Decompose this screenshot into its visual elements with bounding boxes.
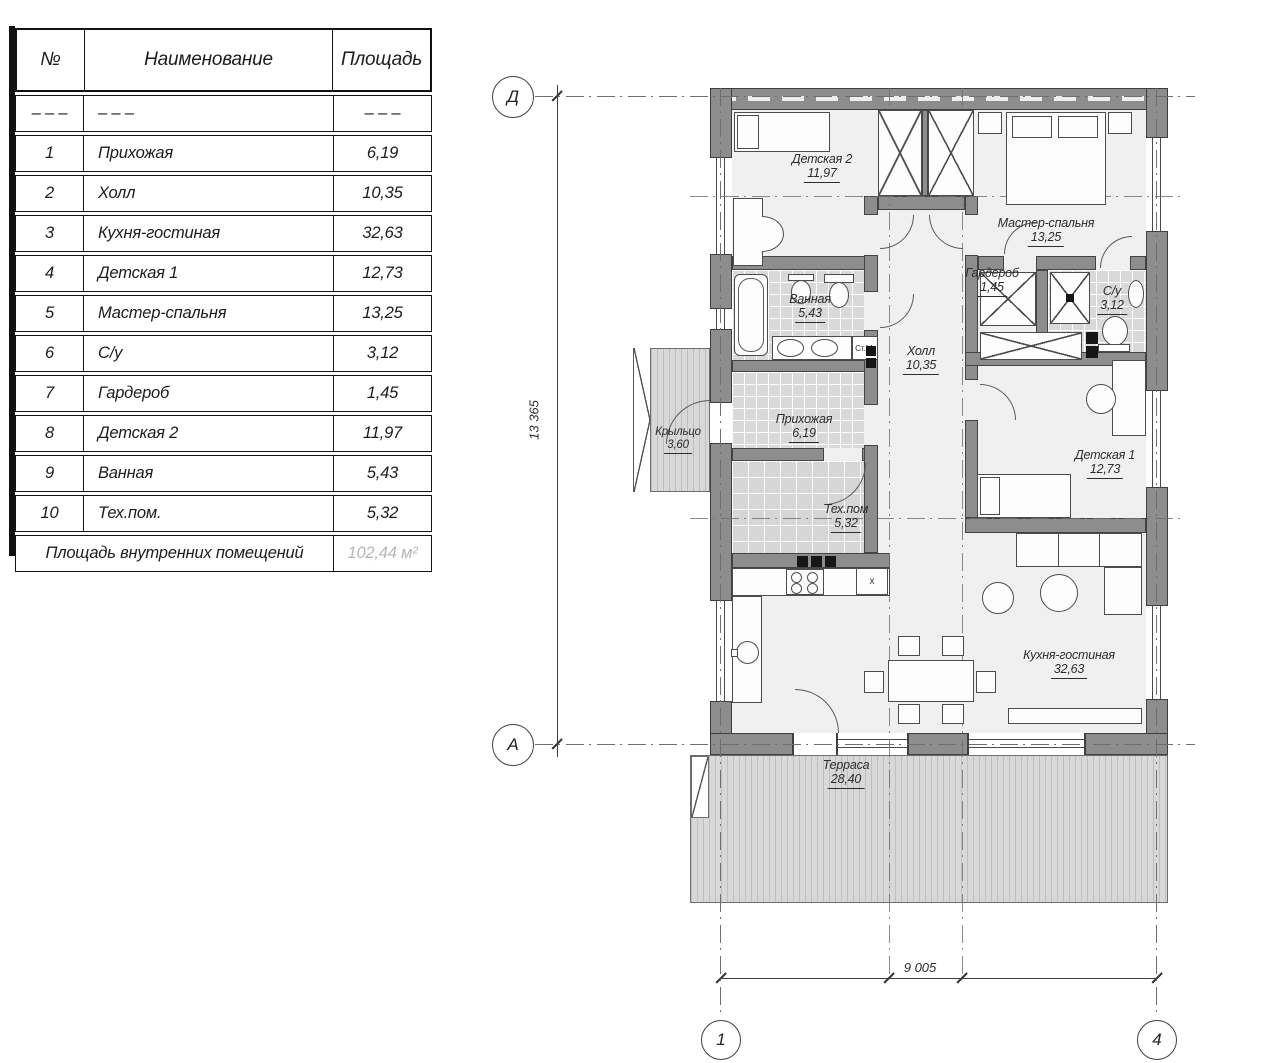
axis-marker-d: Д <box>492 76 534 118</box>
axis-label: 4 <box>1152 1030 1161 1050</box>
room-area: 10,35 <box>903 358 939 374</box>
chair <box>976 671 996 693</box>
room-area-value: 11,97 <box>804 166 839 182</box>
table-row: 10 Тех.пом. 5,32 <box>15 495 432 532</box>
table-header-row: № Наименование Площадь <box>15 28 432 92</box>
wall-interior <box>864 445 878 553</box>
round-sink <box>736 641 759 664</box>
row-area: 10,35 <box>333 176 431 211</box>
stove <box>786 569 824 595</box>
axis-marker-1: 1 <box>701 1020 741 1060</box>
row-area: 5,32 <box>333 496 431 531</box>
axis-label: 1 <box>716 1030 725 1050</box>
tv-console <box>1008 708 1142 724</box>
row-num: 7 <box>16 376 84 411</box>
row-num: 3 <box>16 216 84 251</box>
axis-marker-4: 4 <box>1137 1020 1177 1060</box>
room-label-kuhnya: Кухня-гостиная 32,63 <box>1023 648 1115 679</box>
room-area-value: 28,40 <box>828 772 864 788</box>
room-area: 6,19 <box>776 426 832 442</box>
sofa-seam <box>1058 534 1059 566</box>
pillow <box>1058 116 1098 138</box>
wall-interior <box>965 518 1146 533</box>
sofa <box>1016 533 1142 567</box>
desk <box>733 198 763 266</box>
chair <box>898 704 920 724</box>
room-label-terrasa: Терраса 28,40 <box>823 758 870 789</box>
room-label-krylco: Крыльцо 3,60 <box>655 426 701 454</box>
dimension-line-vertical <box>557 85 558 757</box>
footer-total-value: 102,44 м² <box>333 536 431 571</box>
table-row: 7 Гардероб 1,45 <box>15 375 432 412</box>
row-name: Детская 1 <box>84 256 333 291</box>
sink <box>777 339 804 357</box>
room-label-detskaya1: Детская 1 12,73 <box>1075 448 1135 479</box>
wall-interior <box>1130 256 1146 270</box>
sofa-chaise <box>1104 567 1142 615</box>
header-area: Площадь <box>332 30 430 90</box>
row-area: 5,43 <box>333 456 431 491</box>
row-num: 2 <box>16 176 84 211</box>
axis-label: Д <box>507 87 519 107</box>
footer-label: Площадь внутренних помещений <box>16 536 333 571</box>
axis-marker-a: А <box>492 724 534 766</box>
row-area: 32,63 <box>333 216 431 251</box>
room-name: С/у <box>1097 284 1127 298</box>
window <box>710 157 732 255</box>
floor-plan-sheet: № Наименование Площадь – – – – – – – – –… <box>0 0 1280 1063</box>
room-label-vannaya: Ванная 5,43 <box>789 292 830 323</box>
axis-line-a <box>535 744 1195 745</box>
wardrobe <box>878 110 922 196</box>
room-area-value: 13,25 <box>1028 230 1064 246</box>
row-num: – – – <box>16 96 84 131</box>
table-row: 6 С/у 3,12 <box>15 335 432 372</box>
nightstand <box>978 112 1002 134</box>
room-name: Детская 2 <box>792 152 852 166</box>
boiler-icon <box>825 556 836 567</box>
room-area-value: 3,60 <box>664 439 692 454</box>
row-num: 8 <box>16 416 84 451</box>
row-name: Тех.пом. <box>84 496 333 531</box>
toilet <box>1102 316 1128 346</box>
table-row: 2 Холл 10,35 <box>15 175 432 212</box>
row-area: – – – <box>333 96 431 131</box>
pillow <box>980 477 1000 515</box>
dimension-value-horizontal: 9 005 <box>904 960 937 975</box>
room-name: Терраса <box>823 758 870 772</box>
wall-interior <box>965 196 978 215</box>
row-num: 4 <box>16 256 84 291</box>
sink-marker: x <box>870 576 875 587</box>
room-name: Крыльцо <box>655 426 701 439</box>
boiler-icon <box>797 556 808 567</box>
sink <box>811 339 838 357</box>
boiler-icon <box>811 556 822 567</box>
kitchen-sink-box: x <box>856 568 888 595</box>
axis-line-4 <box>1156 88 1157 1016</box>
wardrobe <box>980 332 1082 360</box>
room-label-prihozhaya: Прихожая 6,19 <box>776 412 832 443</box>
axis-label: А <box>507 735 518 755</box>
room-area-value: 5,32 <box>831 516 861 532</box>
row-area: 3,12 <box>333 336 431 371</box>
table-left-bar <box>9 26 15 556</box>
wardrobe <box>928 110 974 196</box>
room-name: Мастер-спальня <box>998 216 1095 230</box>
wall-interior <box>878 196 965 210</box>
sink <box>1128 280 1144 308</box>
table-footer-row: Площадь внутренних помещений 102,44 м² <box>15 535 432 572</box>
room-label-tehpom: Тех.пом 5,32 <box>824 502 868 533</box>
row-name: Прихожая <box>84 136 333 171</box>
row-name: Холл <box>84 176 333 211</box>
tap-icon <box>731 649 738 657</box>
wall-interior <box>732 448 824 461</box>
burner-icon <box>807 583 818 594</box>
room-area-value: 6,19 <box>789 426 819 442</box>
row-num: 1 <box>16 136 84 171</box>
window <box>1146 137 1168 232</box>
room-name: Кухня-гостиная <box>1023 648 1115 662</box>
room-area: 11,97 <box>792 166 852 182</box>
table-row: 8 Детская 2 11,97 <box>15 415 432 452</box>
chair <box>864 671 884 693</box>
axis-line-d <box>535 96 1195 97</box>
shower-drain-icon <box>1066 294 1074 302</box>
header-num: № <box>17 30 85 90</box>
row-name: – – – <box>84 96 333 131</box>
burner-icon <box>791 583 802 594</box>
row-area: 12,73 <box>333 256 431 291</box>
room-area: 1,45 <box>965 280 1018 296</box>
row-name: Ванная <box>84 456 333 491</box>
row-num: 10 <box>16 496 84 531</box>
row-area: 6,19 <box>333 136 431 171</box>
room-name: Ванная <box>789 292 830 306</box>
row-name: С/у <box>84 336 333 371</box>
riser-icon <box>1086 346 1098 358</box>
window <box>1146 390 1168 488</box>
dimension-line-horizontal <box>721 978 1157 979</box>
room-label-holl: Холл 10,35 <box>903 344 939 375</box>
porch-steps-icon <box>633 348 650 420</box>
terrace-area <box>690 755 1168 903</box>
room-area-value: 10,35 <box>903 358 939 374</box>
row-num: 5 <box>16 296 84 331</box>
header-name: Наименование <box>85 30 332 90</box>
room-area-value: 1,45 <box>977 280 1007 296</box>
room-name: Тех.пом <box>824 502 868 516</box>
dining-table <box>888 660 974 702</box>
burner-icon <box>807 572 818 583</box>
row-area: 11,97 <box>333 416 431 451</box>
room-label-garderob: Гардероб 1,45 <box>965 266 1018 297</box>
nightstand <box>1108 112 1132 134</box>
riser-icon <box>1086 332 1098 344</box>
room-area: 13,25 <box>998 230 1095 246</box>
burner-icon <box>791 572 802 583</box>
room-area: 5,32 <box>824 516 868 532</box>
chair <box>942 704 964 724</box>
chair <box>1086 384 1116 414</box>
axis-line <box>690 518 1180 519</box>
room-area: 28,40 <box>823 772 870 788</box>
room-area: 3,60 <box>655 439 701 454</box>
riser-icon <box>866 346 876 356</box>
porch-steps-icon <box>633 420 650 492</box>
room-area-value: 32,63 <box>1051 662 1087 678</box>
room-label-su: С/у 3,12 <box>1097 284 1127 315</box>
dimension-value-vertical: 13 365 <box>527 400 542 440</box>
wall-interior <box>864 255 878 292</box>
chair <box>942 636 964 656</box>
pouf <box>982 582 1014 614</box>
room-area: 3,12 <box>1097 298 1127 314</box>
terrace-steps-icon <box>691 756 709 818</box>
room-name: Холл <box>903 344 939 358</box>
row-area: 1,45 <box>333 376 431 411</box>
room-name: Прихожая <box>776 412 832 426</box>
room-name: Детская 1 <box>1075 448 1135 462</box>
room-name: Гардероб <box>965 266 1018 280</box>
room-area-value: 5,43 <box>795 306 825 322</box>
table-row: 3 Кухня-гостиная 32,63 <box>15 215 432 252</box>
wall-interior <box>732 360 878 372</box>
row-area: 13,25 <box>333 296 431 331</box>
axis-line <box>690 196 1180 197</box>
chair <box>898 636 920 656</box>
table-row: 1 Прихожая 6,19 <box>15 135 432 172</box>
desk <box>1112 360 1146 436</box>
row-num: 9 <box>16 456 84 491</box>
room-area: 32,63 <box>1023 662 1115 678</box>
toilet <box>829 282 849 308</box>
armchair <box>1040 574 1078 612</box>
room-area-value: 3,12 <box>1097 298 1127 314</box>
room-label-master: Мастер-спальня 13,25 <box>998 216 1095 247</box>
table-row: – – – – – – – – – <box>15 95 432 132</box>
wall-interior <box>864 196 878 215</box>
axis-line-1 <box>720 88 721 1016</box>
room-area-value: 12,73 <box>1087 462 1123 478</box>
row-num: 6 <box>16 336 84 371</box>
room-table: № Наименование Площадь – – – – – – – – –… <box>15 28 432 572</box>
wall-interior <box>1036 256 1096 270</box>
table-row: 9 Ванная 5,43 <box>15 455 432 492</box>
table-row: 4 Детская 1 12,73 <box>15 255 432 292</box>
pillow <box>1012 116 1052 138</box>
riser-icon <box>866 358 876 368</box>
entrance-door-opening <box>710 402 732 444</box>
room-area: 12,73 <box>1075 462 1135 478</box>
row-name: Мастер-спальня <box>84 296 333 331</box>
window <box>710 308 732 330</box>
sofa-seam <box>1099 534 1100 566</box>
bathtub-inner <box>738 278 764 352</box>
room-area: 5,43 <box>789 306 830 322</box>
row-name: Гардероб <box>84 376 333 411</box>
window <box>1146 605 1168 700</box>
pillow <box>737 115 759 149</box>
row-name: Детская 2 <box>84 416 333 451</box>
table-row: 5 Мастер-спальня 13,25 <box>15 295 432 332</box>
window <box>710 600 732 702</box>
toilet-tank <box>1098 344 1130 352</box>
row-name: Кухня-гостиная <box>84 216 333 251</box>
room-label-detskaya2: Детская 2 11,97 <box>792 152 852 183</box>
